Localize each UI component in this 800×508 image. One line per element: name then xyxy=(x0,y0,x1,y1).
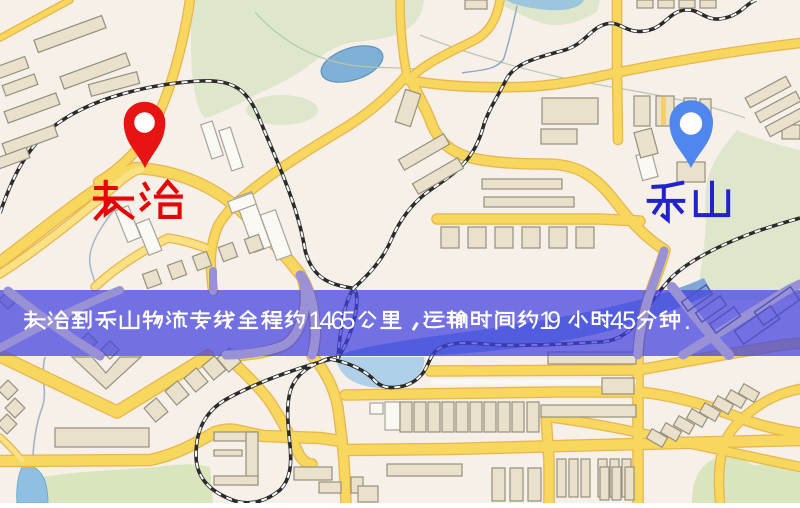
svg-text:19: 19 xyxy=(539,307,561,335)
svg-text:1465: 1465 xyxy=(309,307,356,335)
svg-text:.: . xyxy=(684,307,691,335)
svg-text:45: 45 xyxy=(610,307,636,335)
